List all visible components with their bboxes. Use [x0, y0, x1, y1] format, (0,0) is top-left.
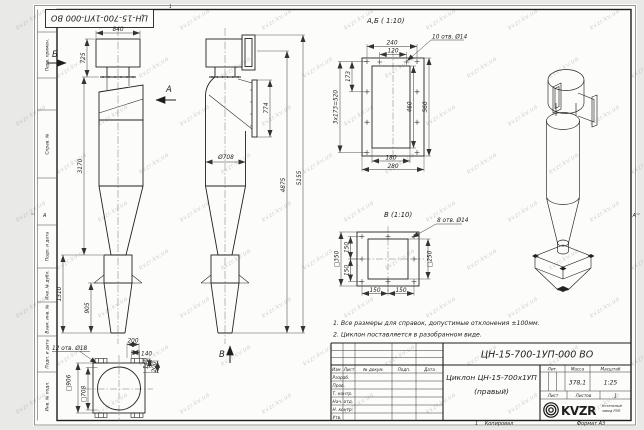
company-logo: KVZR Котельный завод РЭП — [544, 403, 623, 418]
tb-listov-label: Листов — [575, 393, 592, 398]
bottom-view: 12 отв. Ø18 200 140 140 200 □906 □708 — [52, 339, 159, 422]
dim-905: 905 — [85, 302, 91, 313]
dim-560: 560 — [423, 101, 429, 112]
zone-mark-right: А — [632, 213, 637, 219]
dim-280: 280 — [387, 164, 398, 170]
tb-massa-label: Масса — [571, 367, 585, 372]
drawing-sheet-photo: kvzr.kv.uakvzr.kv.uakvzr.kv.uakvzr.kv.ua… — [0, 0, 644, 430]
tb-row-razrab: Разраб. — [333, 375, 350, 381]
copy-label: Копировал — [485, 421, 514, 427]
dim-150-left2: 150 — [345, 265, 351, 276]
callout-12-holes: 12 отв. Ø18 — [52, 345, 87, 352]
coil-icon — [544, 403, 558, 417]
top-stamp: ЦН-15-700-1УП-000 ВО — [46, 10, 154, 28]
view-arrow-v-label: В — [219, 350, 225, 360]
stamp-text: ЦН-15-700-1УП-000 ВО — [50, 14, 148, 24]
dim-3170: 3170 — [78, 158, 84, 173]
tb-name-line1: Циклон ЦН-15-700х1УП — [446, 373, 537, 382]
margin-label: Подп. и дата — [45, 232, 51, 262]
dim-708: Ø708 — [217, 154, 234, 161]
tb-masshtab-label: Масштаб — [601, 367, 621, 372]
dim-725: 725 — [81, 52, 87, 63]
logo-sub2: завод РЭП — [602, 409, 621, 413]
dim-140-right: 140 — [144, 358, 150, 369]
note-1: 1. Все размеры для справок, допустимые о… — [333, 320, 540, 327]
logo-sub1: Котельный — [602, 404, 623, 408]
dim-1310: 1310 — [57, 286, 63, 301]
dim-150-bot1: 150 — [369, 288, 380, 294]
section-v-title: В (1:10) — [384, 211, 412, 219]
tb-designation: ЦН-15-700-1УП-000 ВО — [481, 350, 594, 361]
tb-listov-value: 1 — [614, 394, 617, 400]
section-v: В (1:10) □350 150 — [335, 211, 469, 296]
tb-scale-value: 1:25 — [604, 380, 618, 387]
view-arrow-b-label: Б — [52, 50, 58, 60]
section-ab-title: А,Б ( 1:10) — [366, 17, 405, 25]
margin-label: Подп. и дата — [45, 339, 51, 369]
dim-180: 180 — [385, 156, 396, 162]
dim-708sq: □708 — [82, 385, 88, 402]
dim-250: □250 — [428, 250, 434, 267]
dim-5155: 5155 — [297, 170, 303, 185]
dim-173: 173 — [346, 71, 352, 82]
margin-label: Перв. примен. — [45, 39, 51, 71]
margin-label: Взам. инв. № — [45, 304, 51, 334]
dim-200-right: 200 — [152, 361, 158, 372]
tb-row-nkontr: Н. контр. — [333, 407, 354, 413]
callout-10-holes: 10 отв. Ø14 — [432, 34, 467, 41]
dim-150-bot2: 150 — [395, 288, 406, 294]
margin-label: Справ. № — [45, 133, 51, 154]
section-ab: А,Б ( 1:10) — [334, 17, 468, 172]
dim-200-top: 200 — [127, 339, 138, 345]
tb-col-data: Дата — [423, 367, 435, 372]
callout-8-holes: 8 отв. Ø14 — [437, 217, 469, 224]
tb-row-tkontr: Т. контр. — [333, 391, 353, 397]
tb-lit-label: Лит. — [547, 367, 558, 372]
tb-row-nachotd: Нач. отд. — [333, 399, 354, 405]
notes: 1. Все размеры для справок, допустимые о… — [333, 320, 540, 339]
dim-150-left1: 150 — [345, 242, 351, 253]
dim-240: 240 — [386, 41, 397, 47]
note-2: 2. Циклон поставляется в разобранном вид… — [333, 331, 482, 339]
tb-col-doc: № докум. — [362, 367, 384, 372]
zone-mark-top: 1 — [169, 4, 172, 10]
tb-col-izm: Изм. — [332, 367, 342, 372]
copy-mark: 1 — [475, 421, 478, 427]
format-label: Формат А3 — [577, 421, 605, 427]
title-block: ЦН-15-700-1УП-000 ВО Циклон ЦН-15-700х1У… — [331, 343, 631, 421]
engineering-drawing: Перв. примен. Справ. № Подп. и дата Инв.… — [0, 0, 644, 430]
margin-label: Инв. № дубл. — [45, 270, 51, 299]
tb-row-utv: Утв. — [333, 415, 342, 421]
dim-840: 840 — [112, 27, 123, 33]
side-view: 774 Ø708 4875 5155 В — [201, 28, 305, 363]
tb-massa-value: 378,1 — [569, 380, 586, 387]
zone-mark-left: А — [42, 213, 47, 219]
isometric-view — [532, 70, 597, 293]
dim-120: 120 — [387, 49, 398, 55]
gost-frame — [31, 6, 640, 426]
dim-140-top: 140 — [141, 352, 152, 358]
logo-text: KVZR — [561, 404, 596, 418]
tb-row-prov: Пров. — [333, 383, 346, 389]
tb-name-line2: (правый) — [474, 387, 509, 396]
dim-350: □350 — [335, 250, 341, 267]
tb-col-podp: Подп. — [398, 367, 411, 372]
dim-460: 460 — [408, 101, 414, 112]
tb-list-label: Лист — [547, 393, 559, 398]
margin-label: Инв. № подл. — [45, 382, 51, 412]
dim-4875: 4875 — [281, 177, 287, 192]
dim-906: □906 — [67, 374, 73, 391]
view-arrow-a-label: А — [165, 85, 172, 95]
dim-520: 3х173=520 — [334, 90, 340, 124]
front-view: 840 725 3170 1310 905 Б А — [47, 27, 176, 344]
tb-col-list: Лист — [343, 367, 355, 372]
dim-774: 774 — [264, 102, 270, 113]
